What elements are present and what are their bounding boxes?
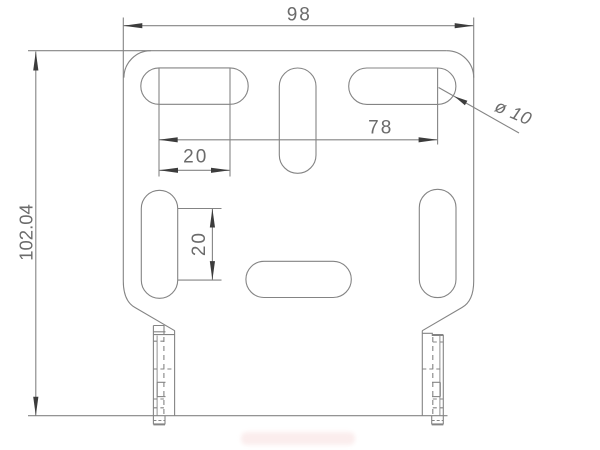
svg-text:20: 20 bbox=[189, 231, 210, 256]
svg-text:ø 10: ø 10 bbox=[492, 96, 535, 129]
svg-text:78: 78 bbox=[368, 118, 393, 139]
svg-text:98: 98 bbox=[287, 5, 312, 26]
svg-text:102.04: 102.04 bbox=[16, 204, 37, 261]
svg-text:20: 20 bbox=[183, 147, 208, 168]
